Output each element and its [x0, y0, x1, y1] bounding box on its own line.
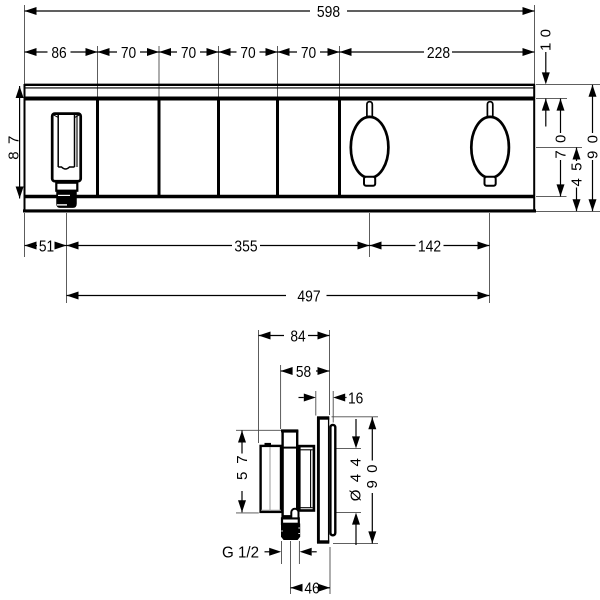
svg-text:142: 142 [418, 238, 441, 255]
svg-text:70: 70 [301, 45, 316, 62]
svg-text:84: 84 [290, 328, 305, 345]
svg-text:86: 86 [51, 45, 66, 62]
svg-text:497: 497 [297, 288, 320, 305]
svg-text:228: 228 [427, 45, 450, 62]
svg-text:Ø44: Ø44 [347, 458, 364, 501]
svg-text:70: 70 [240, 45, 255, 62]
svg-text:46: 46 [304, 581, 319, 598]
svg-text:598: 598 [317, 4, 340, 21]
svg-text:70: 70 [181, 45, 196, 62]
svg-text:16: 16 [348, 390, 363, 407]
svg-text:G 1/2: G 1/2 [222, 545, 259, 562]
svg-text:51: 51 [39, 238, 54, 255]
svg-text:58: 58 [296, 364, 311, 381]
svg-text:70: 70 [121, 45, 136, 62]
svg-text:355: 355 [234, 238, 257, 255]
